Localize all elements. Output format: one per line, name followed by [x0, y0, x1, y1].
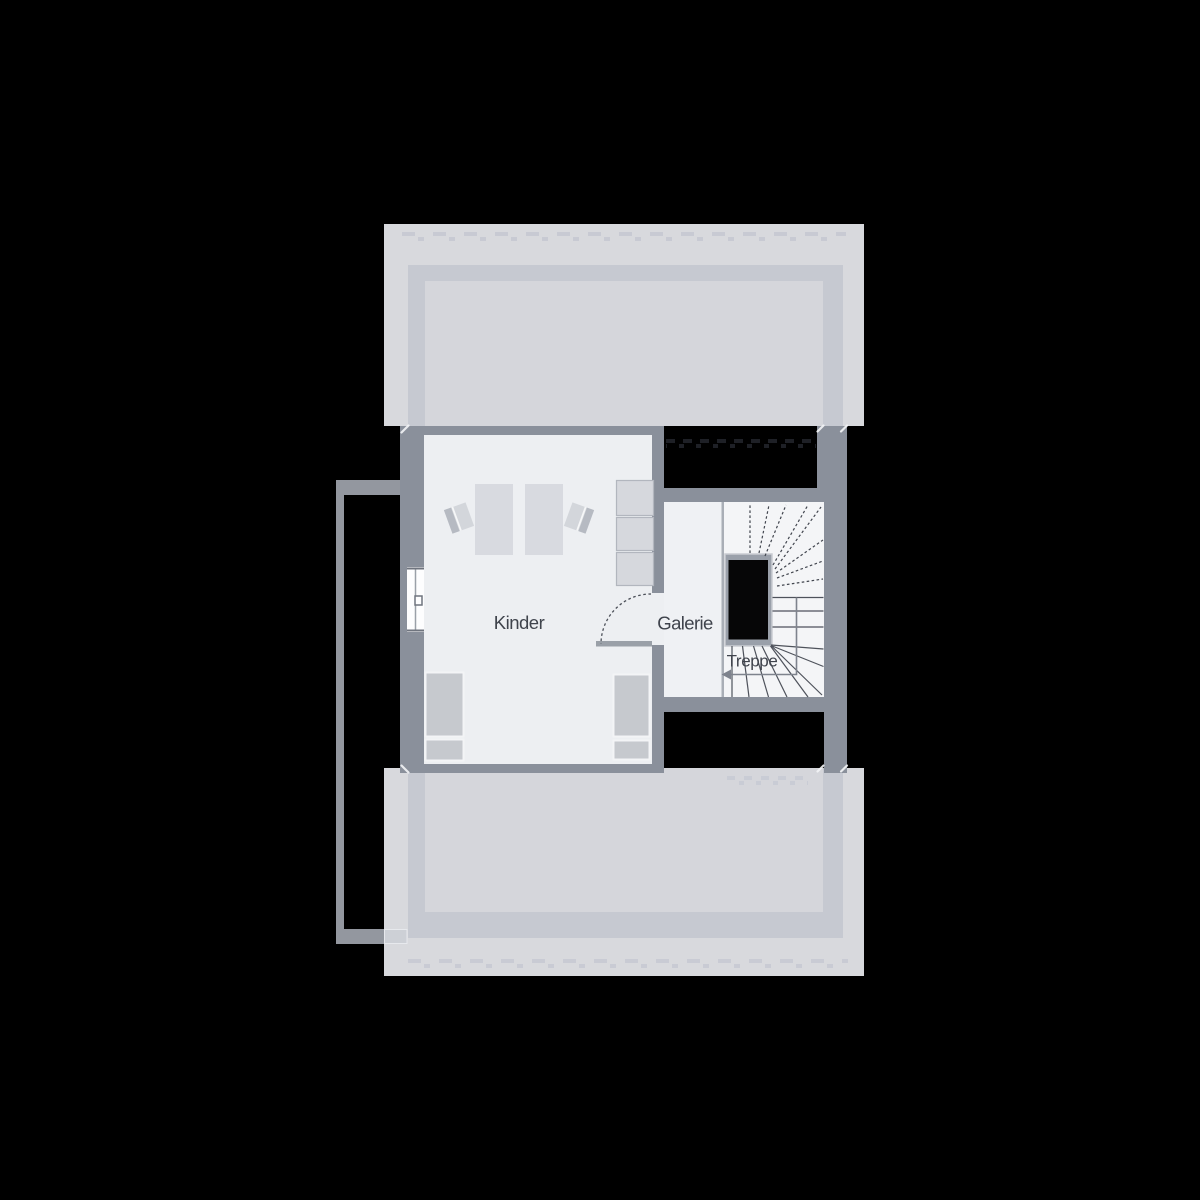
svg-text:Treppe: Treppe	[727, 652, 778, 671]
svg-text:Kinder: Kinder	[494, 612, 545, 633]
svg-text:Galerie: Galerie	[657, 613, 713, 634]
